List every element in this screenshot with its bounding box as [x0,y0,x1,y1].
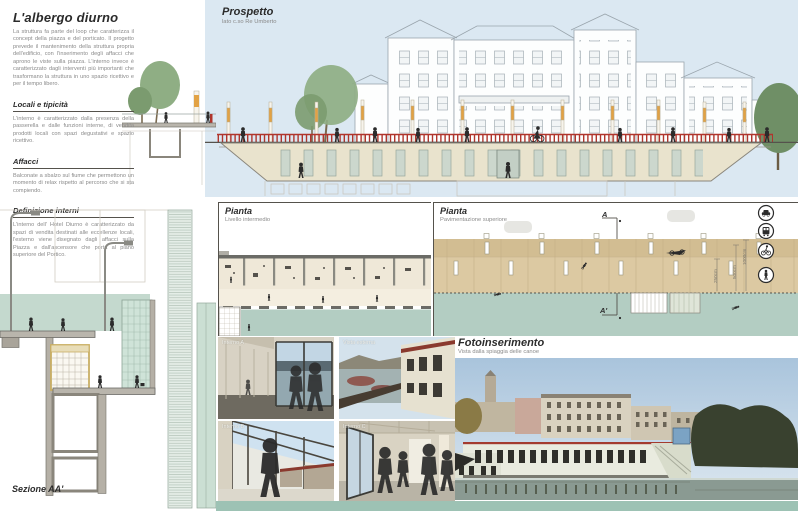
fragment-duct [150,129,180,157]
sezione-panel: Sezione AA' [0,195,216,511]
section-right-wall [98,395,106,494]
foundation-outline [0,210,168,282]
left-section-fragment [122,55,216,197]
board-title: L'albergo diurno [13,10,134,25]
photo-vista-esterna: Vista esterna [339,337,455,419]
fotoinserimento-panel: Fotoinserimento Vista dalla spiaggia del… [455,335,798,511]
plan-rooms-band [219,259,431,290]
fragment-person [164,112,168,123]
pianta-intermedio-title: Pianta [225,206,270,216]
car-icon [759,206,774,221]
fragment-deck [122,114,216,127]
section-drawing [0,195,216,511]
tram-icon [759,224,774,239]
photo-interno-c: Interno C [339,421,455,501]
water-foreground [455,478,798,500]
deck-fixture [2,338,19,348]
pianta-superiore-subtitle: Pavimentazione superiore [440,217,507,223]
section-affacci-heading: Affacci [13,157,134,169]
fotoinserimento-subtitle: Vista dalla spiaggia delle canoe [458,349,544,355]
sezione-label: Sezione AA' [12,484,63,494]
section-marker-a: A [602,210,607,219]
pianta-superiore-title: Pianta [440,206,507,216]
pianta-intermedio-title-block: Pianta Livello intermedio [225,206,270,223]
plan-stairs-hatch [220,308,240,336]
lower-room-1 [53,395,98,452]
dimension-250: 250cm [713,269,718,283]
pianta-intermedio-panel: Pianta Livello intermedio [218,202,431,336]
photo-interno-c-label: Interno C [343,424,366,430]
section-people-mid [98,375,145,388]
photo-interno-a-label: Interno A [222,340,244,346]
section-affacci: Affacci Balconate a sbalzo sul fiume che… [13,157,134,195]
photo-interno-a: Interno A [218,337,334,419]
section-locali-heading: Locali e tipicità [13,100,134,112]
trees-right [691,404,798,468]
prospetto-title: Prospetto [222,6,276,18]
pianta-superiore-panel: Pianta Pavimentazione superiore A A' 250… [433,202,798,336]
photo-vista-esterna-label: Vista esterna [343,340,375,346]
prospetto-subtitle: lato c.so Re Umberto [222,19,276,25]
glass-bar-right [197,303,216,508]
plan-facade-dashes [223,306,431,309]
plan-water-upper [434,293,798,336]
photo-interno-b-label: Interno B [222,424,244,430]
plan-top-wall [219,255,431,259]
presentation-board: Prospetto lato c.so Re Umberto L'albergo… [0,0,798,511]
intro-paragraph: La struttura fa parte del loop che carat… [13,29,134,89]
pianta-superiore-title-block: Pianta Pavimentazione superiore [440,206,507,223]
section-locali: Locali e tipicità L'interno è caratteriz… [13,100,134,146]
photo-interno-b-render [218,421,334,501]
section-affacci-body: Balconate a sbalzo sul fiume che permett… [13,173,134,195]
photomontage [455,358,798,500]
photo-interno-a-render [218,337,334,419]
plan-stairs-upper [631,293,700,313]
fotoinserimento-title-block: Fotoinserimento Vista dalla spiaggia del… [458,337,544,355]
section-locali-body: L'interno è caratterizzato dalla presenz… [13,116,134,146]
photo-vista-esterna-render [339,337,455,419]
louver-strip [168,210,192,508]
fragment-person-2 [206,111,210,123]
photo-interno-c-render [339,421,455,501]
fragment-post-orange [194,95,199,107]
pedestrian-icon [759,268,774,283]
pianta-intermedio-subtitle: Livello intermedio [225,217,270,223]
elevator-grid-box [51,345,89,390]
dimension-1000: 1000cm [742,249,747,265]
upper-deck-slab [0,331,95,338]
plan-water [241,310,431,337]
footer-band [216,501,798,511]
elevation-drawing [205,0,798,197]
prospetto-panel: Prospetto lato c.so Re Umberto [205,0,798,197]
section-marker-a-prime: A' [600,306,607,315]
prospetto-title-block: Prospetto lato c.so Re Umberto [222,6,276,25]
photo-interno-b: Interno B [218,421,334,501]
fotoinserimento-title: Fotoinserimento [458,337,544,349]
plan-corridor [219,289,431,306]
dimension-500: 500cm [732,265,737,279]
glass-box [673,428,690,444]
bicycle-icon [759,244,774,259]
